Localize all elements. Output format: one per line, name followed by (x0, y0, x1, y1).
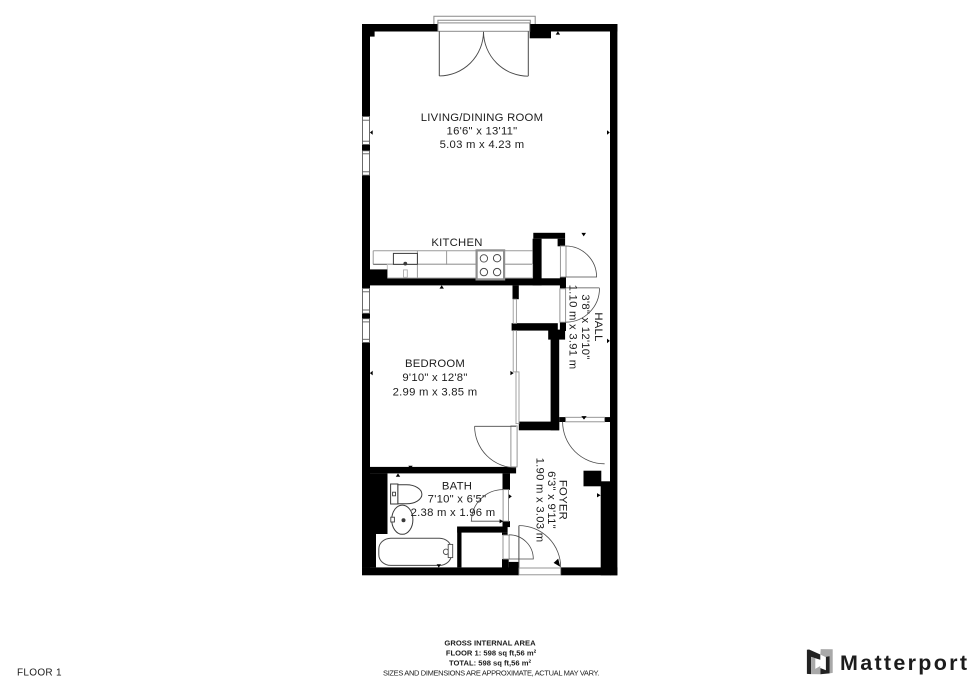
svg-text:7'10" x 6'5": 7'10" x 6'5" (428, 494, 487, 506)
svg-text:SIZES AND DIMENSIONS ARE APPRO: SIZES AND DIMENSIONS ARE APPROXIMATE, AC… (383, 669, 599, 678)
svg-text:FLOOR 1: 598 sq ft,56 m²: FLOOR 1: 598 sq ft,56 m² (446, 649, 537, 658)
svg-text:FLOOR 1: FLOOR 1 (17, 668, 62, 679)
svg-text:1.90 m x 3.03 m: 1.90 m x 3.03 m (534, 458, 546, 543)
svg-text:GROSS INTERNAL AREA: GROSS INTERNAL AREA (444, 639, 536, 648)
svg-text:BATH: BATH (442, 481, 472, 493)
svg-text:6'3" x 9'11": 6'3" x 9'11" (545, 471, 557, 529)
svg-text:2.99 m x 3.85 m: 2.99 m x 3.85 m (393, 387, 478, 399)
svg-text:9'10" x 12'8": 9'10" x 12'8" (402, 372, 467, 384)
svg-text:1.10 m x 3.91 m: 1.10 m x 3.91 m (566, 285, 578, 370)
svg-text:HALL: HALL (592, 312, 604, 341)
svg-text:TOTAL: 598 sq ft,56 m²: TOTAL: 598 sq ft,56 m² (449, 658, 531, 667)
svg-text:5.03 m x 4.23 m: 5.03 m x 4.23 m (440, 139, 525, 151)
svg-text:3'8" x 12'10": 3'8" x 12'10" (579, 294, 591, 359)
svg-text:2.38 m x 1.96 m: 2.38 m x 1.96 m (411, 507, 496, 519)
svg-text:KITCHEN: KITCHEN (431, 237, 482, 249)
svg-text:FOYER: FOYER (557, 480, 569, 520)
svg-text:Matterport: Matterport (840, 651, 969, 675)
svg-text:BEDROOM: BEDROOM (405, 358, 465, 370)
svg-text:LIVING/DINING ROOM: LIVING/DINING ROOM (421, 112, 544, 124)
svg-text:16'6" x 13'11": 16'6" x 13'11" (447, 126, 518, 138)
